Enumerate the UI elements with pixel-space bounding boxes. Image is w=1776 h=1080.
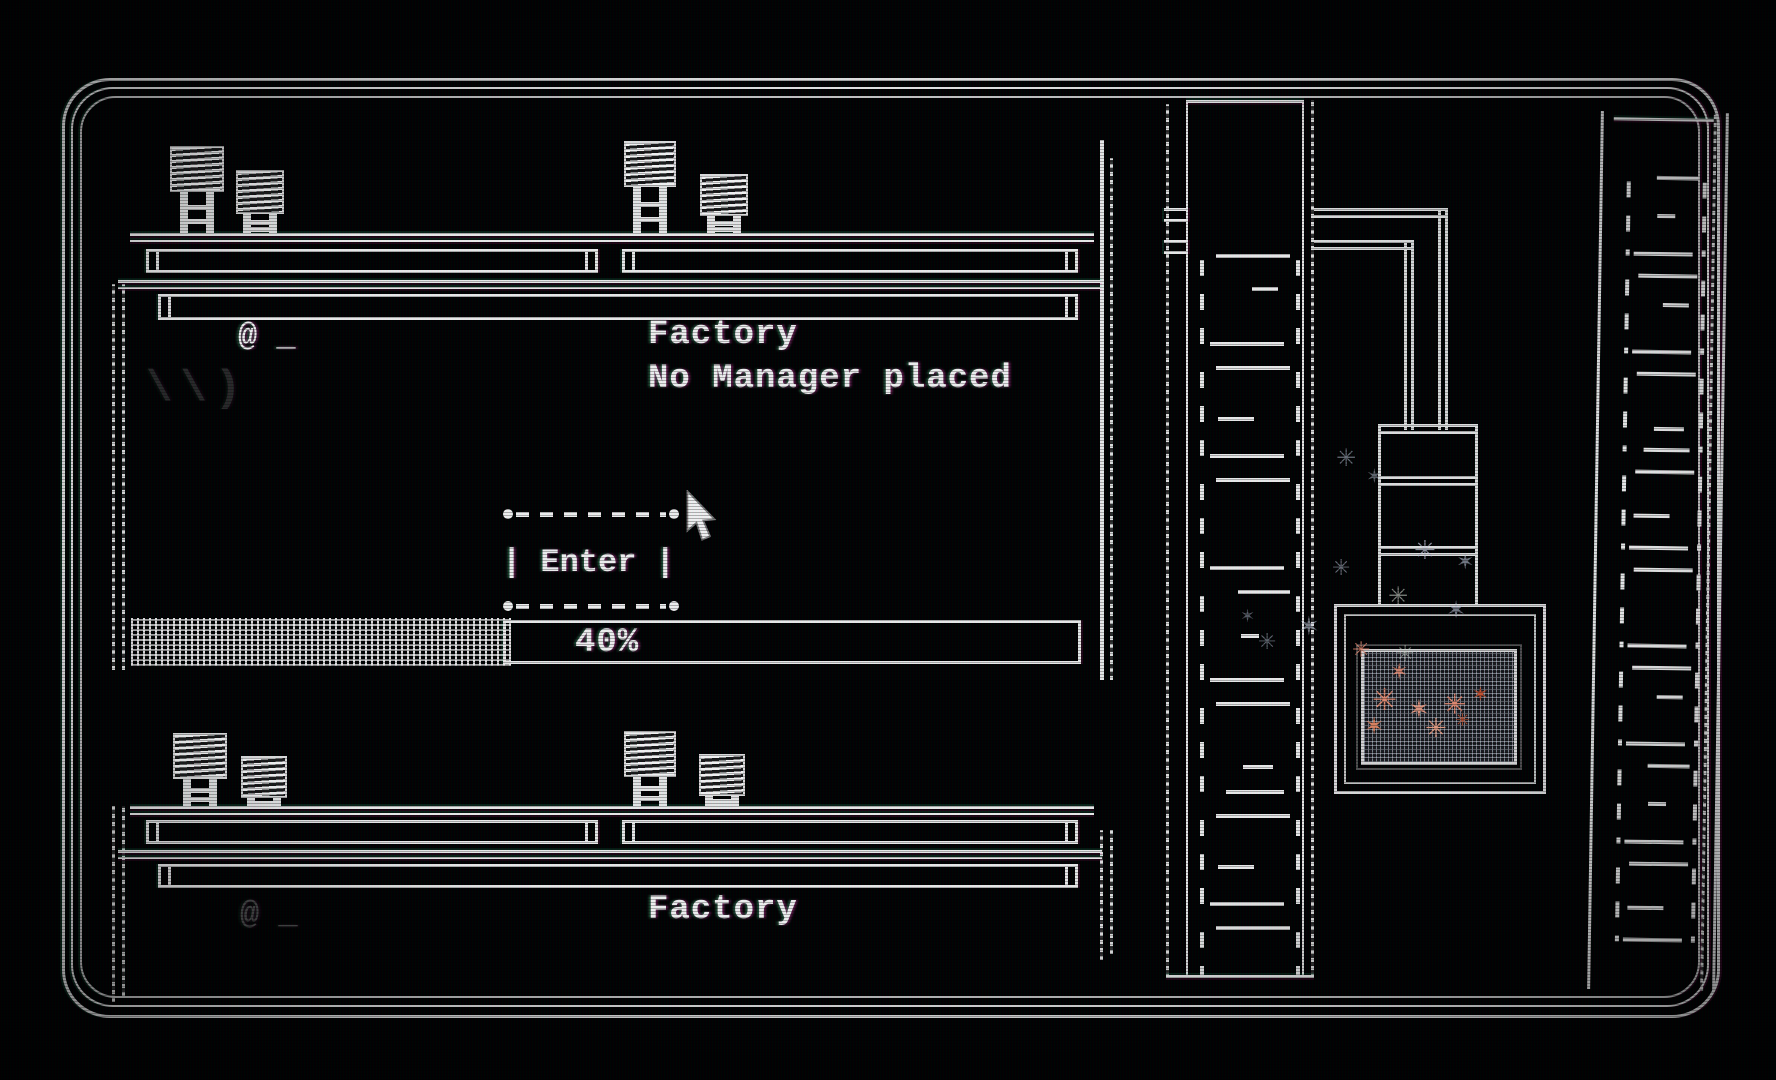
robot-legs — [247, 798, 281, 806]
robot-head — [624, 141, 676, 187]
decorative-glyph — [1200, 254, 1300, 346]
platform-line — [118, 287, 1102, 289]
room-right-border — [1100, 140, 1104, 680]
decorative-glyph — [1626, 175, 1707, 256]
crt-screen: @ _ \\) Factory No Manager placed | Ente… — [0, 0, 1776, 1080]
robot-head — [173, 733, 227, 779]
decorative-glyph — [1200, 366, 1300, 458]
room-title: Factory — [648, 891, 798, 929]
robot-head — [700, 174, 748, 216]
conveyor-beam — [622, 820, 1078, 844]
robot-head — [241, 756, 287, 798]
pipe — [1314, 240, 1414, 250]
robot-worker — [699, 754, 745, 806]
conveyor-beam — [146, 820, 598, 844]
room-left-border — [122, 284, 125, 670]
glyph-strip-middle — [1166, 100, 1314, 978]
progress-bar-fill — [131, 618, 511, 666]
robot-legs — [633, 777, 667, 806]
decorative-glyph — [1623, 371, 1704, 452]
room-left-border — [122, 806, 125, 996]
progress-label: 40% — [575, 624, 639, 662]
conveyor-beam — [158, 294, 1078, 320]
robot-head — [236, 170, 284, 214]
decorative-glyph — [1200, 814, 1300, 906]
robot-worker — [241, 756, 287, 806]
robot-worker — [236, 170, 284, 233]
strip-border — [1614, 117, 1714, 122]
robot-worker — [624, 141, 676, 233]
decorative-glyph — [1200, 478, 1300, 570]
robot-worker — [624, 731, 676, 806]
chimney-segment-divider — [1378, 424, 1478, 434]
progress-bar: 40% — [131, 616, 1081, 668]
pipe — [1314, 208, 1448, 218]
robot-legs — [633, 187, 667, 233]
robot-legs — [707, 216, 741, 233]
decorative-glyph — [1200, 702, 1300, 794]
ghost-marks: \\) — [146, 364, 249, 414]
platform-line — [118, 850, 1102, 853]
room-status: No Manager placed — [648, 360, 1012, 398]
robot-head — [170, 146, 224, 192]
decorative-glyph — [1615, 861, 1696, 942]
robot-legs — [180, 192, 214, 233]
enter-button-label: | Enter | — [502, 544, 675, 581]
cursor-pointer-icon — [684, 490, 718, 542]
platform-line — [118, 280, 1102, 283]
robot-head — [624, 731, 676, 777]
pipe — [1404, 240, 1414, 430]
enter-button-bottom-border — [516, 604, 666, 609]
enter-button-top-border — [516, 512, 666, 517]
decorative-glyph — [1621, 469, 1702, 550]
decorative-glyph — [1200, 926, 1300, 978]
platform-line — [130, 233, 1094, 236]
platform-line — [130, 240, 1094, 242]
chimney-segment-divider — [1378, 476, 1478, 486]
robot-worker — [700, 174, 748, 233]
decorative-glyph — [1619, 567, 1700, 648]
platform-line — [130, 813, 1094, 815]
robot-legs — [183, 779, 217, 806]
player-prompt: @ _ — [238, 318, 296, 355]
robot-head — [699, 754, 745, 796]
robot-worker — [170, 146, 224, 233]
robot-legs — [243, 214, 277, 233]
furnace-fire-screen — [1361, 649, 1517, 765]
decorative-glyph — [1618, 665, 1699, 746]
decorative-glyph — [1616, 763, 1697, 844]
pipe — [1438, 208, 1448, 430]
glyph-strip-right — [1587, 111, 1729, 991]
decorative-glyph — [1200, 590, 1300, 682]
room-left-border — [112, 806, 115, 1002]
decorative-glyph — [1624, 273, 1705, 354]
furnace-chimney — [1378, 424, 1478, 606]
room-right-border — [1110, 830, 1113, 954]
room-left-border — [112, 284, 115, 670]
robot-legs — [705, 796, 739, 806]
conveyor-beam — [158, 864, 1078, 888]
platform-line — [118, 857, 1102, 859]
player-prompt: @ _ — [240, 896, 298, 933]
conveyor-beam — [146, 249, 598, 273]
conveyor-beam — [622, 249, 1078, 273]
spark-icon — [1332, 558, 1350, 580]
enter-button[interactable]: | Enter | — [500, 500, 680, 618]
room-title: Factory — [648, 316, 798, 354]
robot-worker — [173, 733, 227, 806]
chimney-segment-divider — [1378, 546, 1478, 556]
room-right-border — [1110, 158, 1113, 680]
spark-icon — [1336, 446, 1356, 470]
furnace-machine[interactable] — [1334, 604, 1546, 794]
